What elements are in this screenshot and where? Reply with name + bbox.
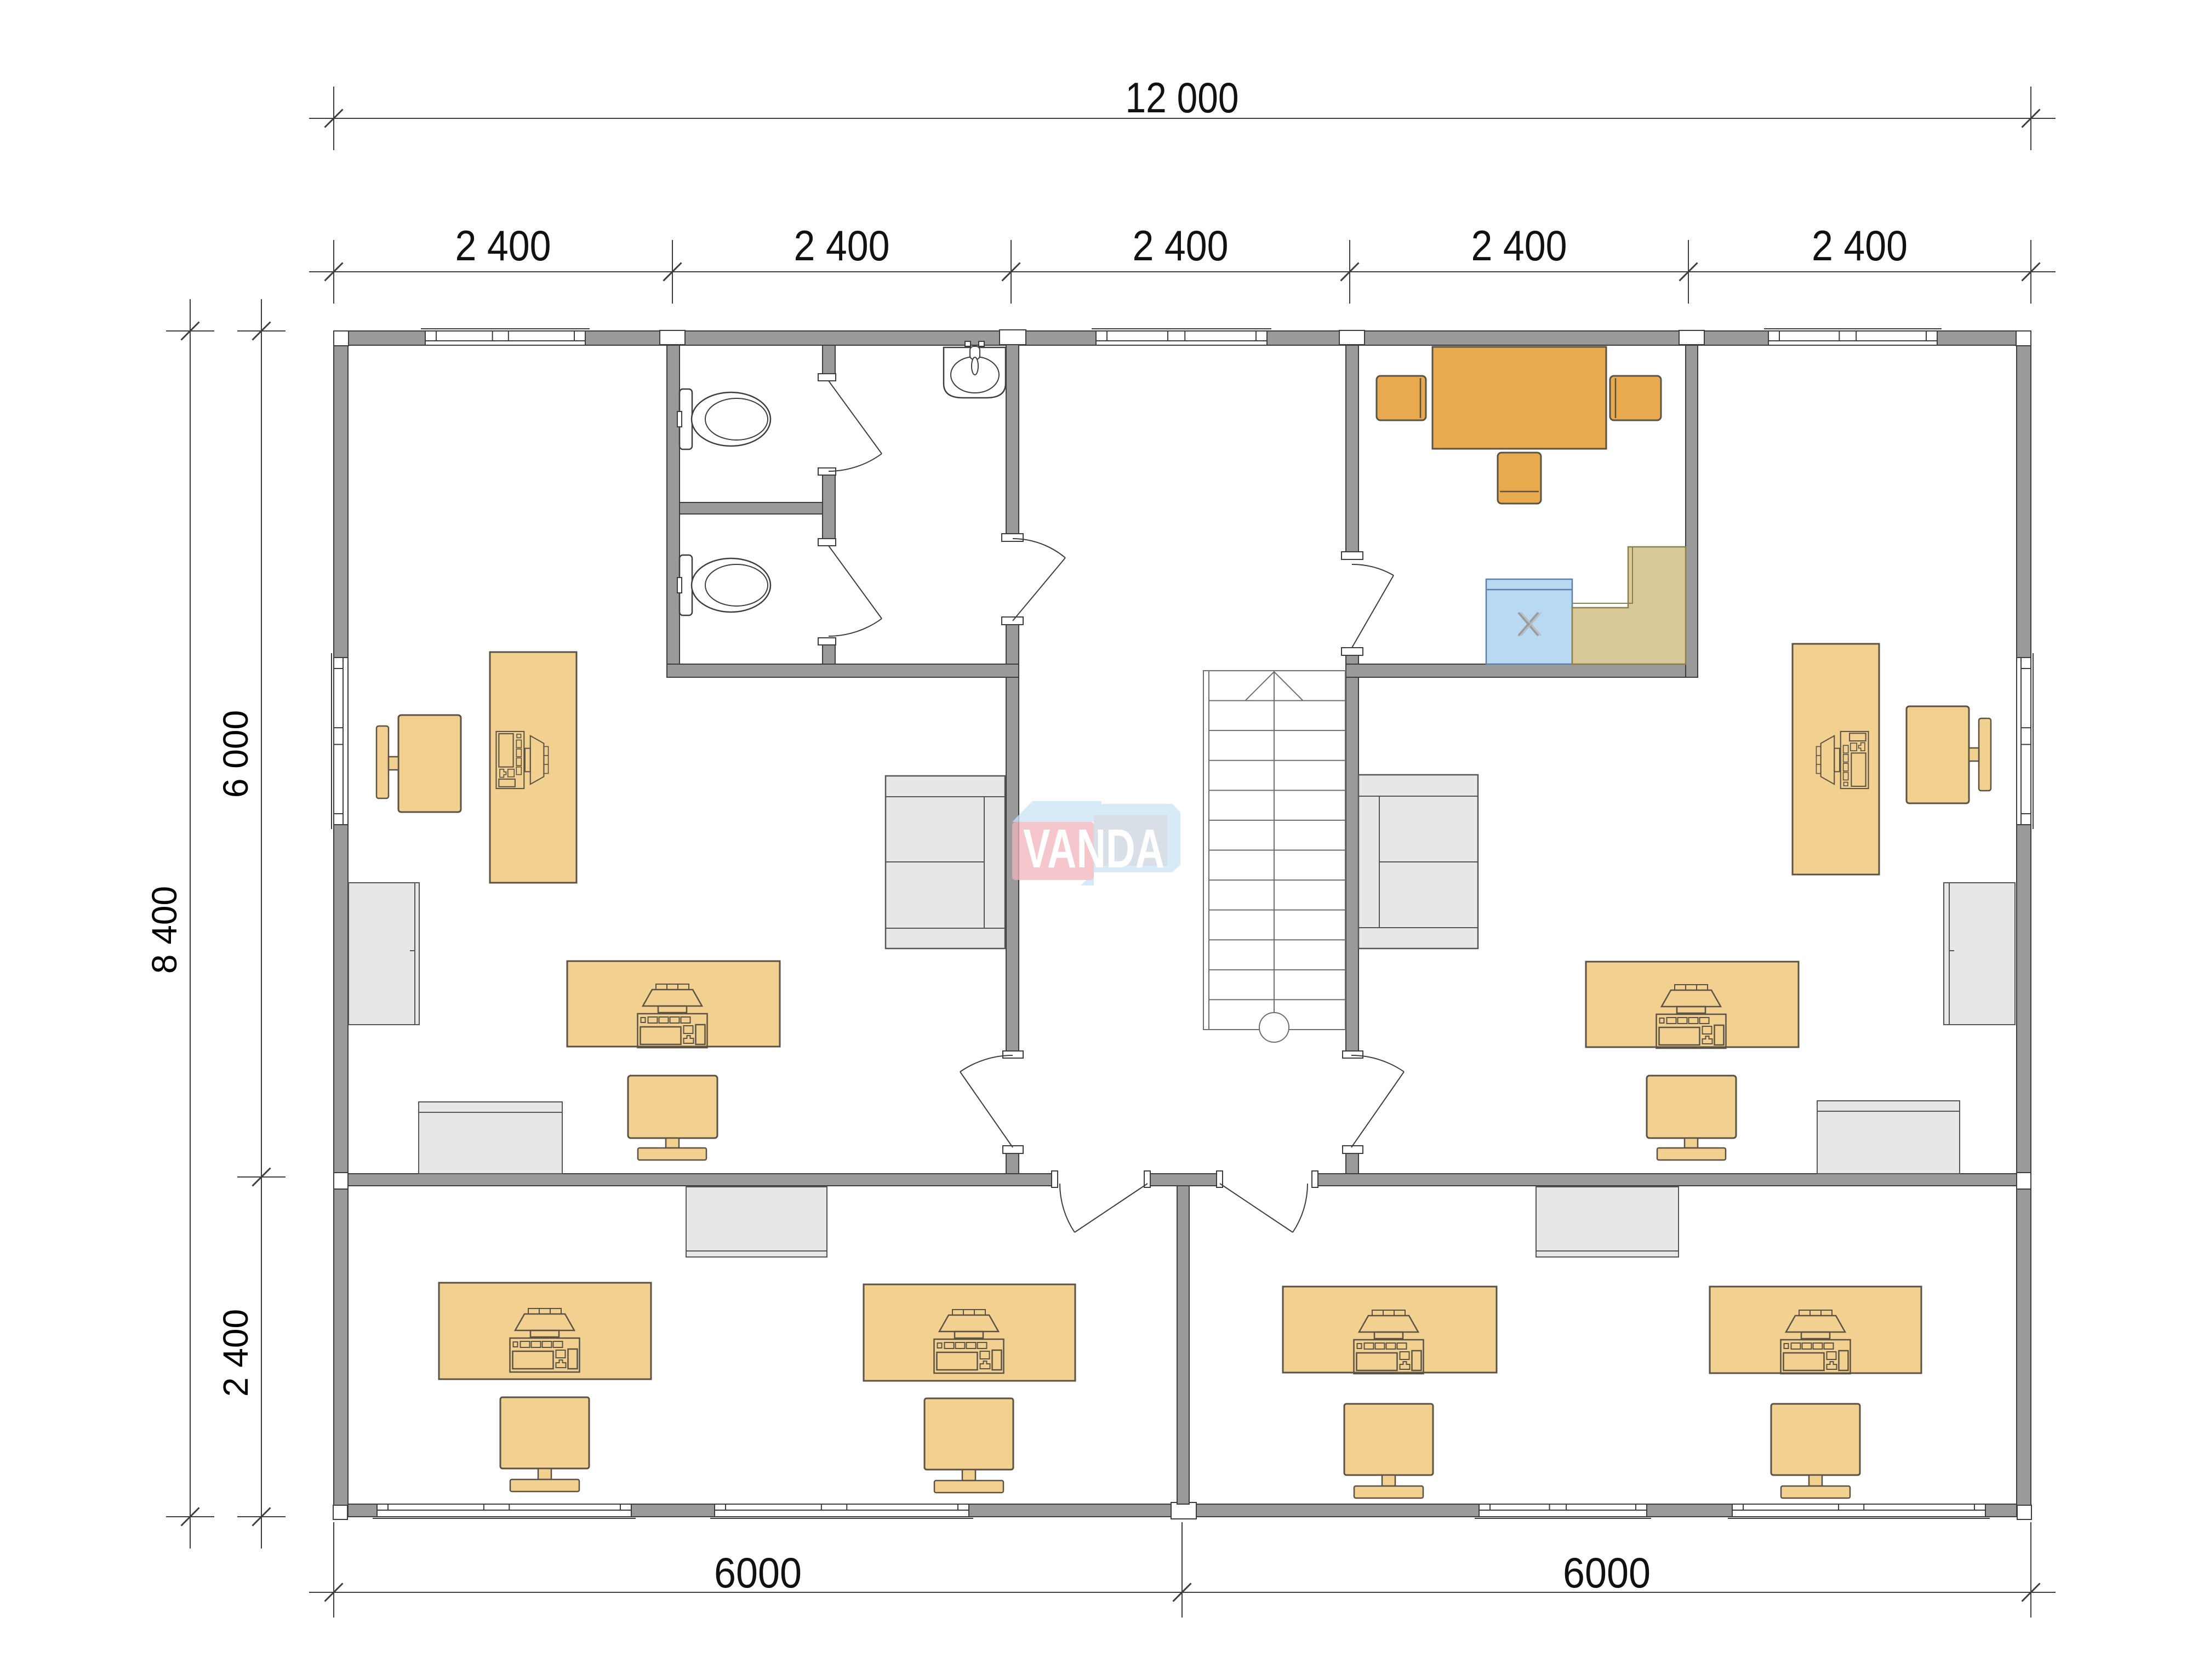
svg-text:2 400: 2 400 [1133,221,1229,270]
svg-text:12 000: 12 000 [1126,73,1239,122]
svg-text:6000: 6000 [1563,1548,1651,1597]
svg-text:VANDA: VANDA [1023,818,1164,879]
svg-text:2 400: 2 400 [1471,221,1567,270]
svg-text:2 400: 2 400 [794,221,890,270]
svg-text:6 000: 6 000 [216,710,255,798]
svg-text:2 400: 2 400 [455,221,551,270]
svg-text:6000: 6000 [714,1548,802,1597]
svg-text:8 400: 8 400 [145,886,184,974]
svg-text:2 400: 2 400 [216,1309,255,1397]
svg-text:2 400: 2 400 [1812,221,1908,270]
